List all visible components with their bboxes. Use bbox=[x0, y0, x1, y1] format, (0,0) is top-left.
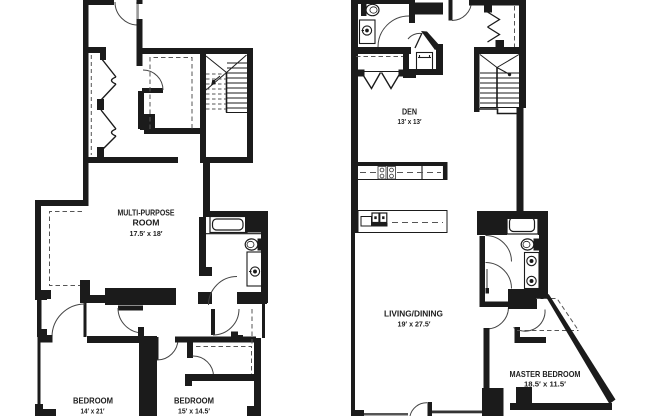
svg-text:BEDROOM: BEDROOM bbox=[174, 396, 214, 406]
svg-text:15′ x 14.5′: 15′ x 14.5′ bbox=[178, 407, 210, 416]
svg-text:14′ x 21′: 14′ x 21′ bbox=[81, 407, 105, 416]
svg-text:18.5′ x 11.5′: 18.5′ x 11.5′ bbox=[524, 379, 566, 388]
svg-text:BEDROOM: BEDROOM bbox=[73, 396, 113, 406]
svg-text:ROOM: ROOM bbox=[133, 218, 160, 228]
svg-text:13′ x 13′: 13′ x 13′ bbox=[398, 117, 422, 126]
svg-text:DEN: DEN bbox=[402, 106, 417, 116]
svg-text:MULTI-PURPOSE: MULTI-PURPOSE bbox=[118, 208, 175, 218]
svg-text:19′ x 27.5′: 19′ x 27.5′ bbox=[398, 320, 431, 329]
svg-text:MASTER BEDROOM: MASTER BEDROOM bbox=[510, 369, 581, 379]
svg-text:17.5′ x 18′: 17.5′ x 18′ bbox=[130, 229, 163, 238]
svg-text:LIVING/DINING: LIVING/DINING bbox=[384, 309, 443, 319]
